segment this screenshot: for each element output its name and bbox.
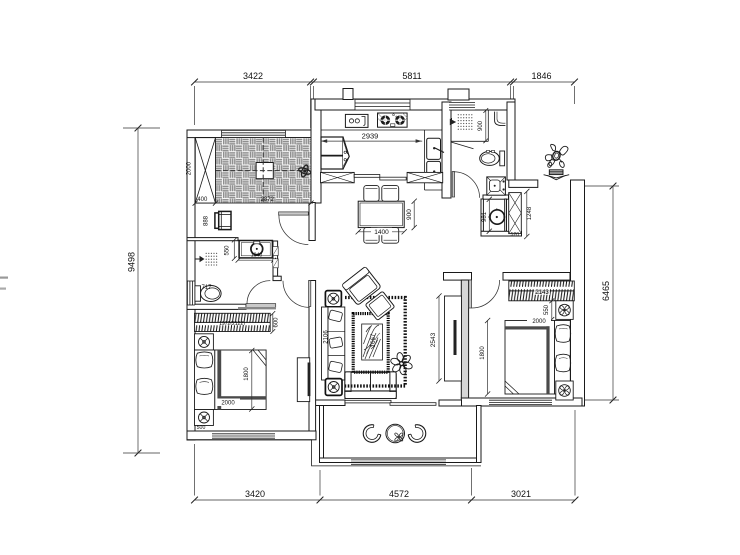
svg-text:400: 400 xyxy=(197,197,208,203)
svg-text:900: 900 xyxy=(406,209,413,220)
svg-text:3422: 3422 xyxy=(243,71,263,81)
svg-text:1800: 1800 xyxy=(244,367,250,381)
svg-text:5811: 5811 xyxy=(402,71,421,81)
svg-text:717: 717 xyxy=(201,285,212,291)
svg-text:1800: 1800 xyxy=(480,346,486,360)
svg-text:2000: 2000 xyxy=(532,319,546,325)
svg-text:1400: 1400 xyxy=(374,229,389,236)
svg-text:1846: 1846 xyxy=(531,71,551,81)
svg-text:1248: 1248 xyxy=(527,206,533,220)
svg-text:4572: 4572 xyxy=(389,489,409,499)
svg-text:2543: 2543 xyxy=(430,332,437,347)
svg-text:1667: 1667 xyxy=(371,333,377,347)
svg-text:981: 981 xyxy=(482,211,488,222)
svg-text:9498: 9498 xyxy=(127,252,137,272)
svg-text:2872: 2872 xyxy=(261,197,275,203)
svg-text:2000: 2000 xyxy=(187,161,193,175)
svg-text:900: 900 xyxy=(478,120,484,131)
svg-text:3021: 3021 xyxy=(511,489,531,499)
svg-text:2000: 2000 xyxy=(221,401,235,407)
svg-text:520: 520 xyxy=(510,232,519,238)
svg-text:550: 550 xyxy=(225,245,231,256)
svg-text:2939: 2939 xyxy=(362,131,379,140)
svg-text:500: 500 xyxy=(197,425,206,431)
svg-text:2106: 2106 xyxy=(324,330,330,344)
svg-text:3420: 3420 xyxy=(245,489,265,499)
svg-text:6465: 6465 xyxy=(601,281,611,301)
svg-text:1040: 1040 xyxy=(251,253,263,259)
svg-text:550: 550 xyxy=(544,304,550,315)
svg-text:1972(2122): 1972(2122) xyxy=(219,321,245,327)
svg-text:2143: 2143 xyxy=(535,290,549,296)
svg-text:600: 600 xyxy=(274,317,280,328)
svg-text:888: 888 xyxy=(204,215,210,226)
